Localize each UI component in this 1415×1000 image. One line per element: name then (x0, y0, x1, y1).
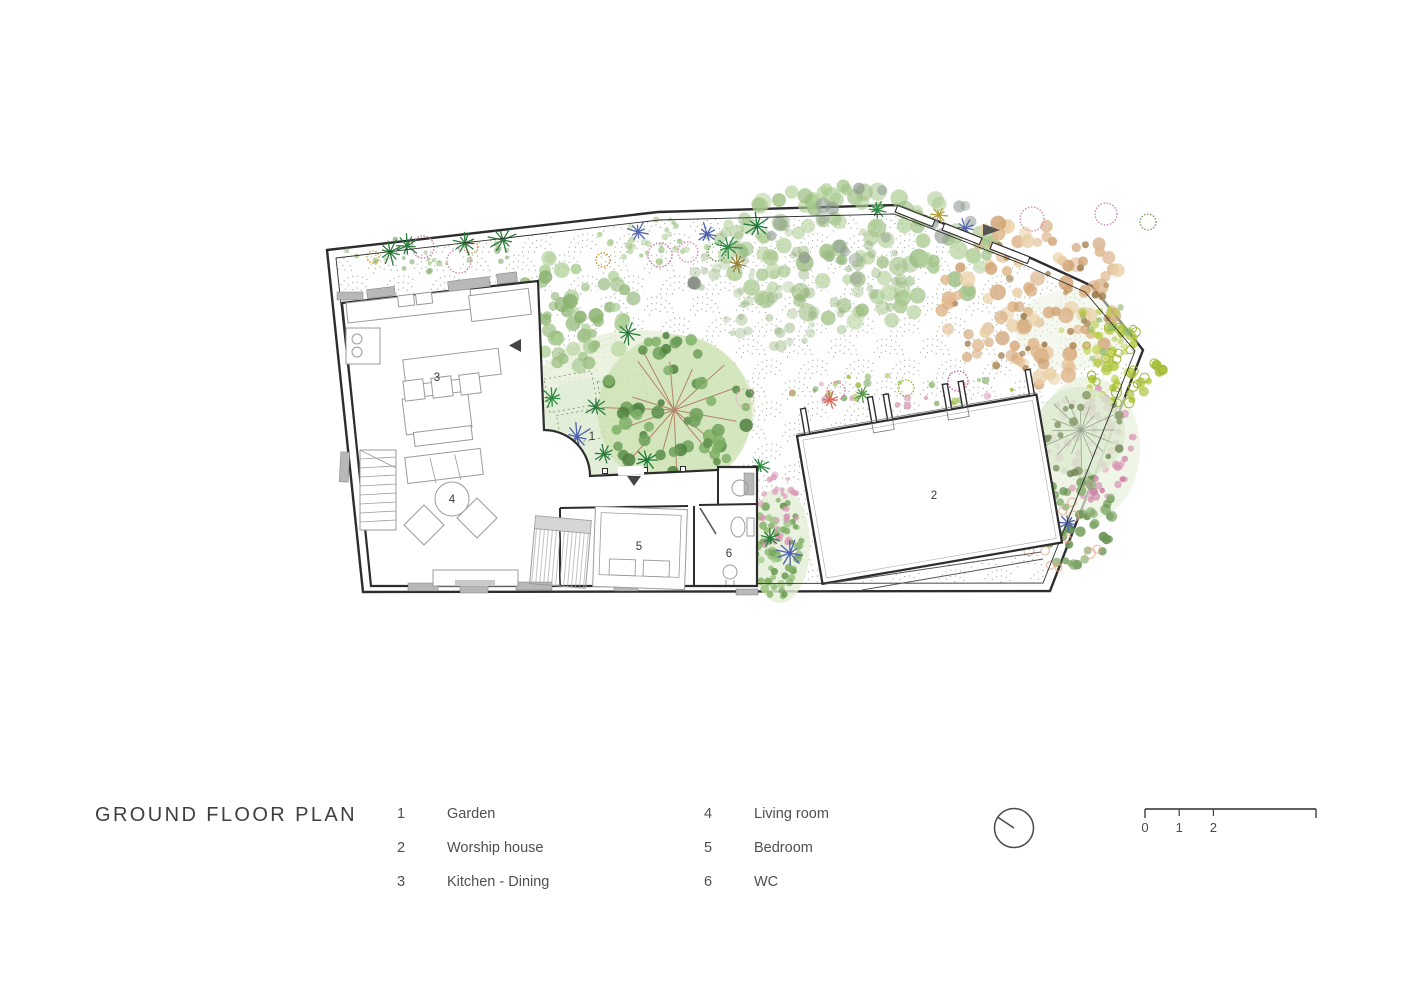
legend-number: 3 (397, 874, 447, 890)
room-label-5: 5 (636, 541, 642, 553)
legend-label: Living room (754, 806, 829, 822)
legend-number: 4 (704, 806, 754, 822)
room-label-3: 3 (434, 372, 440, 384)
scale-tick-2: 2 (1210, 820, 1217, 835)
room-label-1: 1 (589, 431, 595, 443)
legend-label: Kitchen - Dining (447, 874, 549, 890)
wardrobe (530, 516, 592, 589)
floor-plan-page: 123456 GROUND FLOOR PLAN 1 Garden 2 Wors… (0, 0, 1415, 1000)
legend-row: 1 Garden (397, 806, 677, 821)
stairs (360, 450, 396, 530)
legend-row: 6 WC (704, 874, 964, 889)
legend-number: 5 (704, 840, 754, 856)
legend-label: Bedroom (754, 840, 813, 856)
tree-trunk-dot (688, 277, 701, 290)
scale-bar: 0 1 2 (1138, 799, 1328, 841)
north-needle (998, 817, 1014, 828)
legend-column-2: 4 Living room 5 Bedroom 6 WC (704, 806, 964, 908)
legend-number: 2 (397, 840, 447, 856)
page-title: GROUND FLOOR PLAN (95, 804, 357, 827)
room-label-6: 6 (726, 548, 732, 560)
legend-row: 5 Bedroom (704, 840, 964, 855)
room-label-4: 4 (449, 494, 456, 506)
legend-row: 2 Worship house (397, 840, 677, 855)
legend-label: WC (754, 874, 778, 890)
legend-column-1: 1 Garden 2 Worship house 3 Kitchen - Din… (397, 806, 677, 908)
legend-label: Worship house (447, 840, 543, 856)
north-indicator (992, 806, 1038, 852)
legend-number: 6 (704, 874, 754, 890)
legend-label: Garden (447, 806, 495, 822)
room-label-2: 2 (931, 490, 937, 502)
scale-tick-1: 1 (1176, 820, 1183, 835)
legend-number: 1 (397, 806, 447, 822)
scale-tick-0: 0 (1141, 820, 1148, 835)
legend-row: 3 Kitchen - Dining (397, 874, 677, 889)
legend-row: 4 Living room (704, 806, 964, 821)
